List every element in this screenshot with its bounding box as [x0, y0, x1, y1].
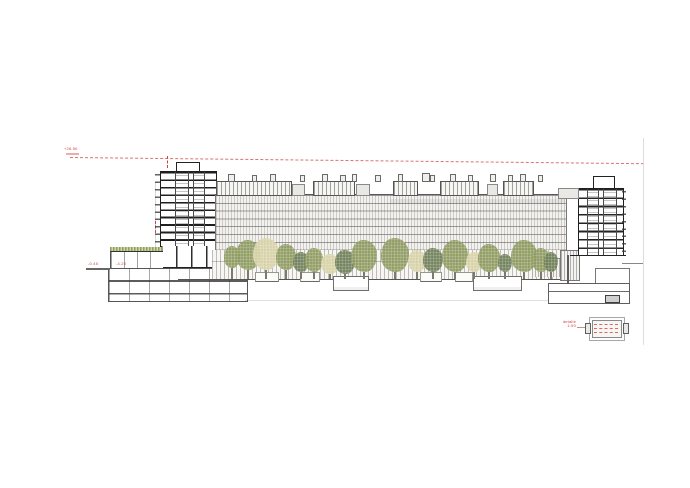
- roof-penthouse-glazed: [503, 181, 534, 196]
- detail-caption: detalle 1:50: [556, 320, 576, 328]
- roof-penthouse-glazed: [216, 181, 292, 196]
- tree: [442, 240, 468, 279]
- tree-trunk: [473, 272, 475, 279]
- roof-vent-stack: [375, 175, 381, 182]
- tree: [544, 252, 558, 279]
- tree: [498, 254, 512, 279]
- left-tower-section: [160, 171, 217, 247]
- height-limit-level-label: +28.50: [64, 147, 78, 151]
- left-tower-window-strip: [175, 172, 189, 247]
- right-tower-balconies: [622, 191, 626, 253]
- detail-callout-inner: [592, 320, 622, 338]
- tree: [423, 248, 443, 279]
- tree-trunk: [285, 270, 287, 279]
- roof-penthouse-small: [356, 184, 370, 196]
- detail-red-line-2: [594, 328, 618, 329]
- roof-penthouse-small: [292, 184, 305, 196]
- podium-section: [110, 251, 163, 269]
- roof-vent-stack: [322, 174, 328, 182]
- roof-penthouse-small: [487, 184, 498, 196]
- tree-canopy: [423, 248, 443, 272]
- left-tower-balconies: [155, 174, 160, 246]
- roof-vent-stack: [490, 174, 496, 182]
- tree-canopy: [442, 240, 468, 272]
- right-reference-line: [643, 138, 644, 345]
- roof-vent-stack: [450, 174, 456, 182]
- tree-trunk: [313, 272, 315, 279]
- right-tower-window-strip: [587, 189, 599, 256]
- tree-trunk: [432, 272, 434, 279]
- tree-trunk: [300, 272, 302, 279]
- roof-penthouse-glazed: [313, 181, 355, 196]
- tree-trunk: [523, 272, 525, 279]
- roof-vent-stack: [340, 175, 346, 182]
- tree-trunk: [550, 272, 552, 279]
- drawing-canvas: +28.50 -0.45 -4.20 +0.00: [0, 0, 690, 488]
- detail-red-line-3: [594, 332, 618, 333]
- right-ground-line: [622, 263, 643, 264]
- tree-canopy: [351, 240, 377, 272]
- right-tower-base-slab: [570, 255, 626, 257]
- height-limit-tick: [66, 153, 79, 155]
- tree-canopy: [544, 252, 558, 272]
- tree: [478, 244, 500, 279]
- tree-trunk: [504, 272, 506, 279]
- detail-end-cap-right: [623, 323, 629, 334]
- tree-trunk: [454, 272, 456, 279]
- roof-vent-stack: [270, 174, 276, 182]
- roof-vent-stack: [300, 175, 305, 182]
- right-mech-equipment: [605, 295, 620, 303]
- left-tower-ground-floor: [160, 246, 217, 268]
- detail-caption-line2: 1:50: [556, 324, 576, 328]
- roof-vent-stack: [520, 174, 526, 182]
- roof-penthouse-small: [558, 188, 579, 199]
- roof-vent-stack: [508, 175, 513, 182]
- tree-trunk: [231, 268, 233, 279]
- roof-penthouse-glazed: [440, 181, 479, 196]
- tree-trunk: [416, 272, 418, 279]
- roof-vent-stack: [538, 175, 543, 182]
- right-retaining-wall: [567, 255, 569, 283]
- height-limit-connector: [167, 156, 168, 168]
- basement-level-label: -4.20: [116, 262, 126, 266]
- detail-red-line-1: [594, 324, 618, 325]
- main-facade-upper-band: [390, 199, 565, 204]
- left-tower-window-strip-2: [193, 172, 205, 247]
- street-level-label: -0.45: [88, 262, 98, 266]
- roof-vent-stack: [430, 175, 435, 182]
- tree-canopy: [381, 238, 409, 272]
- roof-vent-stack: [398, 174, 403, 182]
- detail-leader-line: [577, 327, 585, 328]
- roof-penthouse-glazed: [393, 181, 418, 196]
- tree-trunk: [394, 272, 396, 279]
- height-limit-line: [70, 157, 644, 164]
- roof-vent-stack: [252, 175, 257, 182]
- tree-trunk: [488, 272, 490, 279]
- tree-trunk: [363, 272, 365, 279]
- tree-trunk: [329, 274, 331, 279]
- tree: [351, 240, 377, 279]
- tree-trunk: [540, 272, 542, 279]
- detail-end-cap-left: [585, 323, 591, 334]
- tree-trunk: [247, 270, 249, 279]
- roof-vent-stack: [228, 174, 235, 182]
- right-tower-section: [578, 188, 624, 256]
- roof-vent-stack: [468, 175, 473, 182]
- tree-trunk: [265, 270, 267, 279]
- roof-vent-stack: [352, 174, 357, 182]
- right-tower-window-strip-2: [603, 189, 617, 256]
- street-level-line: [86, 268, 110, 270]
- tree-trunk: [344, 274, 346, 279]
- tree-canopy: [498, 254, 512, 272]
- roof-vent-stack: [422, 173, 430, 182]
- basement-faint-line: [245, 300, 550, 301]
- tree: [381, 238, 409, 279]
- tree-canopy: [478, 244, 500, 272]
